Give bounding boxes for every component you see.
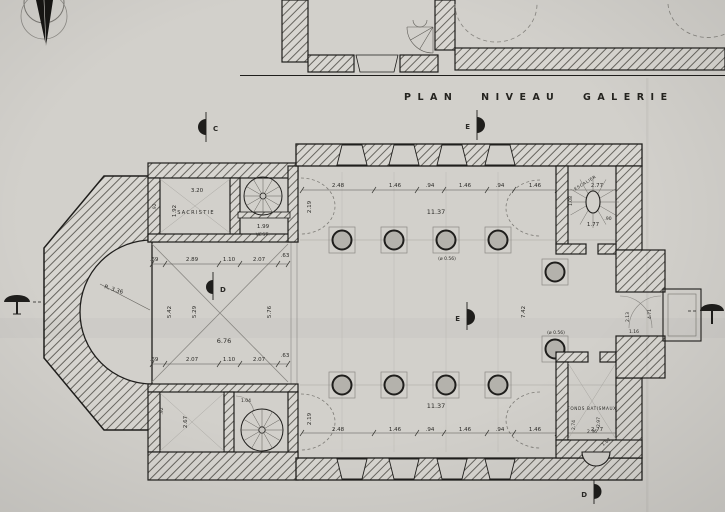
dim-label: .69 <box>150 257 159 263</box>
drawing-title: PLAN NIVEAU GALERIE <box>404 92 674 103</box>
dim-label: 2.19 <box>307 412 313 425</box>
room-label-sacristie: SACRISTIE <box>177 210 215 216</box>
dim-label: 2.07 <box>253 357 266 363</box>
dim-label: 1.77 <box>587 222 600 228</box>
dim-label: 2.89 <box>186 257 199 263</box>
paper-shadow-band <box>0 318 725 338</box>
section-letter: D <box>581 491 587 499</box>
dim-label: 5.76 <box>267 305 273 318</box>
dim-label: 1.46 <box>529 183 542 189</box>
dim-label: 11.37 <box>427 208 446 216</box>
dim-label: 5.42 <box>167 306 173 318</box>
dim-label: 1.46 <box>529 427 542 433</box>
plan-drawing: PLAN NIVEAU GALERIE R. 3.36 .69 2.89 1.1… <box>0 0 725 512</box>
dim-label: 2.07 <box>253 257 266 263</box>
dim-label: 1.46 <box>459 183 472 189</box>
section-letter: C <box>213 125 218 133</box>
dim-label: .63 <box>281 353 290 359</box>
room-label-fonts-baptismaux: FONDS BATISMAUX <box>567 406 616 411</box>
paper-crease <box>646 78 649 512</box>
dim-label: 1.10 <box>223 357 236 363</box>
dim-label: 1.10 <box>223 257 236 263</box>
dim-label: .92 <box>159 407 165 414</box>
dim-label: 2.19 <box>307 200 313 213</box>
dim-label: 2.48 <box>332 183 345 189</box>
dim-label: .94 <box>426 183 435 189</box>
dim-label: 1.46 <box>459 427 472 433</box>
dim-label: 2.48 <box>332 427 345 433</box>
dim-label: 2.74 <box>571 420 577 430</box>
dim-label: 3.20 <box>191 188 204 194</box>
dim-label: 2.97 <box>596 417 602 427</box>
dim-label: 2.07 <box>186 357 199 363</box>
section-letter: D <box>220 286 226 294</box>
section-letter: E <box>465 123 470 131</box>
dim-label: .94 <box>496 427 505 433</box>
dim-label: .90 <box>604 216 611 222</box>
dim-label: .63 <box>281 253 290 259</box>
dim-label: 1.92 <box>172 205 178 217</box>
dim-label: .94 <box>426 427 435 433</box>
dim-label: 1.99 <box>257 224 270 230</box>
southwest-stair-icon <box>241 409 283 451</box>
dim-label: 7.42 <box>521 306 527 318</box>
sacristy-stair-icon <box>244 177 282 215</box>
dim-label: 1.04 <box>241 398 251 404</box>
dim-label: 1.46 <box>389 427 402 433</box>
dim-label: .94 <box>496 183 505 189</box>
dim-label: 1.08 <box>568 196 574 206</box>
dim-label: 2.67 <box>183 415 189 428</box>
room-label-vestiaire: VEST. <box>256 232 271 237</box>
dim-label: 2.36 <box>587 429 597 435</box>
scanned-architectural-plan: PLAN NIVEAU GALERIE R. 3.36 .69 2.89 1.1… <box>0 0 725 512</box>
dim-label: 1.46 <box>389 183 402 189</box>
dim-label: 5.29 <box>192 305 198 318</box>
dim-label: .69 <box>150 357 159 363</box>
dim-label: (ø 0.56) <box>438 256 456 262</box>
dim-label: 11.37 <box>427 402 446 410</box>
dim-label: 6.76 <box>217 337 231 345</box>
dim-label: .92 <box>152 203 158 210</box>
